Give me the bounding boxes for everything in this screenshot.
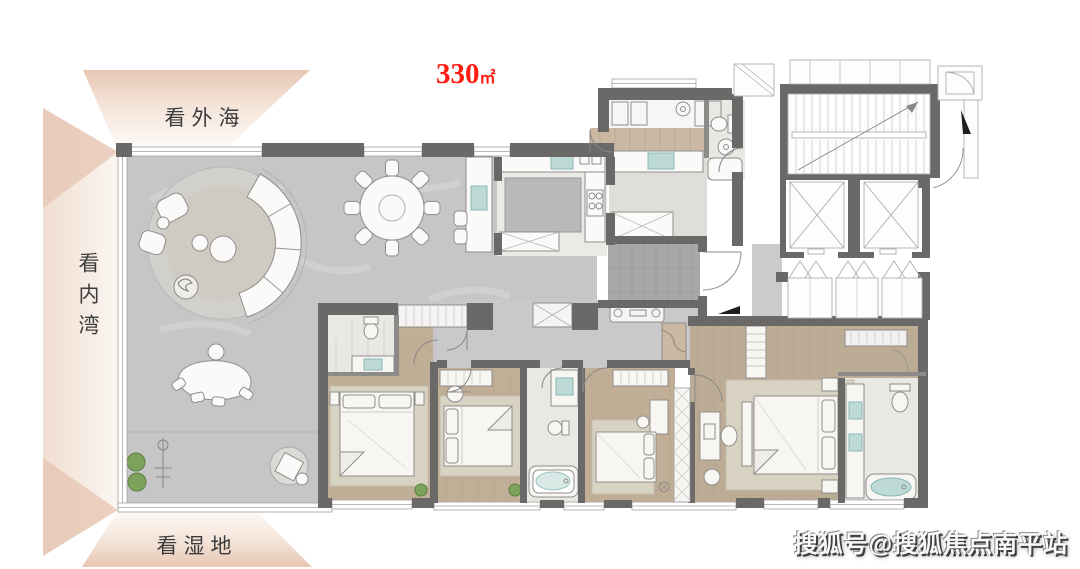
toilet-tank [364, 317, 378, 324]
plant [415, 484, 427, 496]
view-label-inner-bay: 看内湾 [72, 252, 102, 345]
dining-table [344, 160, 440, 256]
entry-door-arc [703, 252, 741, 290]
bar-stool [454, 211, 467, 226]
desk [700, 412, 720, 460]
island-sink [471, 186, 487, 210]
pillow [446, 409, 458, 434]
hall-closet [398, 305, 467, 327]
closet-divider [674, 388, 690, 502]
pillow [446, 438, 458, 463]
stool [208, 344, 224, 360]
nightstand [822, 480, 838, 493]
slope-symbol [718, 306, 740, 314]
sink [556, 378, 573, 395]
pillow [343, 395, 375, 408]
pillow [644, 434, 654, 455]
area-label: 330㎡ [436, 60, 496, 89]
plant [509, 484, 521, 496]
area-value: 330 [436, 60, 480, 89]
view-label-wetland: 看湿地 [112, 530, 282, 560]
coffee-table [192, 235, 208, 251]
view-label-outer-sea: 看外海 [120, 102, 290, 132]
sink [849, 434, 862, 451]
plant [128, 473, 146, 491]
sink [364, 359, 382, 370]
stool [637, 416, 649, 428]
toilet-tank [890, 384, 910, 391]
watermark: 搜狐号@搜狐焦点南平站 [794, 524, 1068, 559]
floor-plan-image: 看外海 看内湾 看湿地 330㎡ 搜狐号@搜狐焦点南平站 [0, 0, 1080, 569]
pillow [822, 437, 835, 469]
closet-rail [845, 330, 907, 346]
service-corridor [964, 100, 978, 178]
nightstand [822, 378, 838, 391]
kitchen-island-block [505, 178, 581, 232]
floor-plan-drawing [0, 0, 1080, 569]
foyer-tile [608, 244, 700, 300]
pillow [379, 395, 411, 408]
round-sink [718, 139, 734, 155]
bed-bench [742, 402, 752, 466]
bar-stool [454, 229, 467, 244]
pillow [644, 458, 654, 479]
nightstand [415, 392, 424, 405]
side-table [157, 217, 169, 229]
pantry-sink [648, 153, 674, 169]
toilet-bowl [711, 117, 727, 131]
sink [849, 402, 862, 419]
pillow [822, 400, 835, 432]
area-unit: ㎡ [480, 71, 496, 89]
plant [127, 453, 145, 471]
toilet-bowl [364, 323, 378, 339]
toilet-bowl [892, 392, 908, 412]
desk-chair [721, 426, 737, 446]
dresser [650, 400, 668, 434]
nightstand [330, 392, 339, 405]
coffee-table [210, 236, 236, 262]
toilet-bowl [548, 421, 562, 435]
toilet-tank [562, 421, 569, 435]
kitchen-sink [551, 155, 573, 169]
stool [704, 469, 720, 485]
